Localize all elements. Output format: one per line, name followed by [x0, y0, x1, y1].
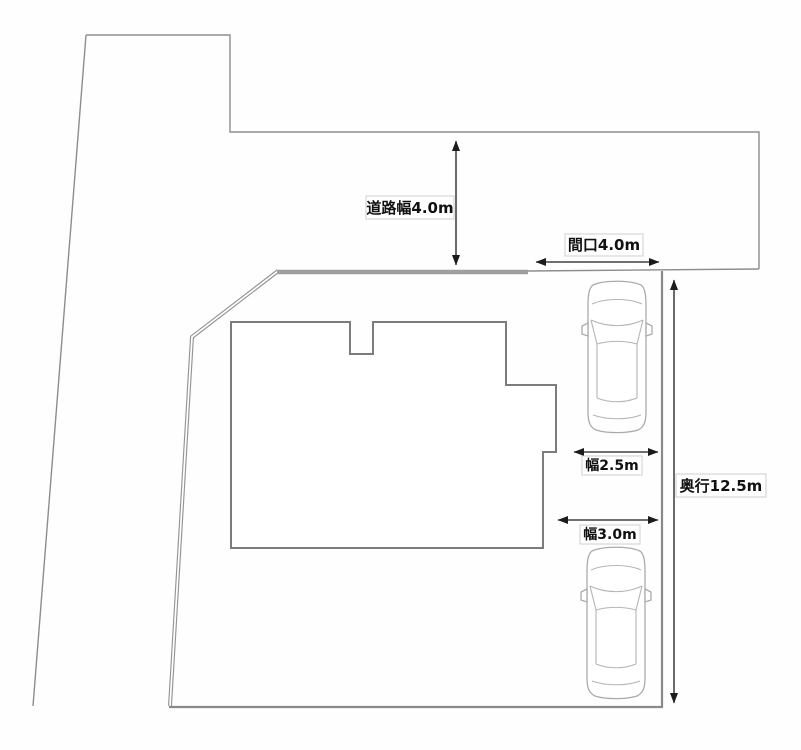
road-width-label-group: 道路幅4.0m [366, 196, 454, 219]
west-outer-boundary-line [33, 35, 86, 706]
depth-label-group: 奥行12.5m [676, 474, 766, 497]
road-south-edge-thin [528, 269, 759, 271]
parking-width-upper-label: 幅2.5m [585, 457, 638, 474]
parking-width-lower-label: 幅3.0m [583, 526, 636, 543]
road-north-parcel-boundary [86, 35, 759, 269]
car-icon-top [582, 281, 652, 432]
car-icon-bottom [581, 547, 651, 698]
parking-cars [581, 281, 652, 698]
road-width-label: 道路幅4.0m [366, 199, 453, 217]
site-plan-page: 道路幅4.0m 間口4.0m 幅2.5m 奥行12.5m 幅3.0m [0, 0, 801, 750]
depth-label: 奥行12.5m [680, 477, 763, 495]
parking-width-lower-label-group: 幅3.0m [580, 525, 640, 544]
parking-width-upper-label-group: 幅2.5m [582, 456, 642, 475]
frontage-label-group: 間口4.0m [565, 234, 643, 256]
site-plan-drawing: 道路幅4.0m 間口4.0m 幅2.5m 奥行12.5m 幅3.0m [0, 0, 801, 750]
frontage-label: 間口4.0m [568, 236, 640, 254]
building-outline [231, 322, 556, 548]
